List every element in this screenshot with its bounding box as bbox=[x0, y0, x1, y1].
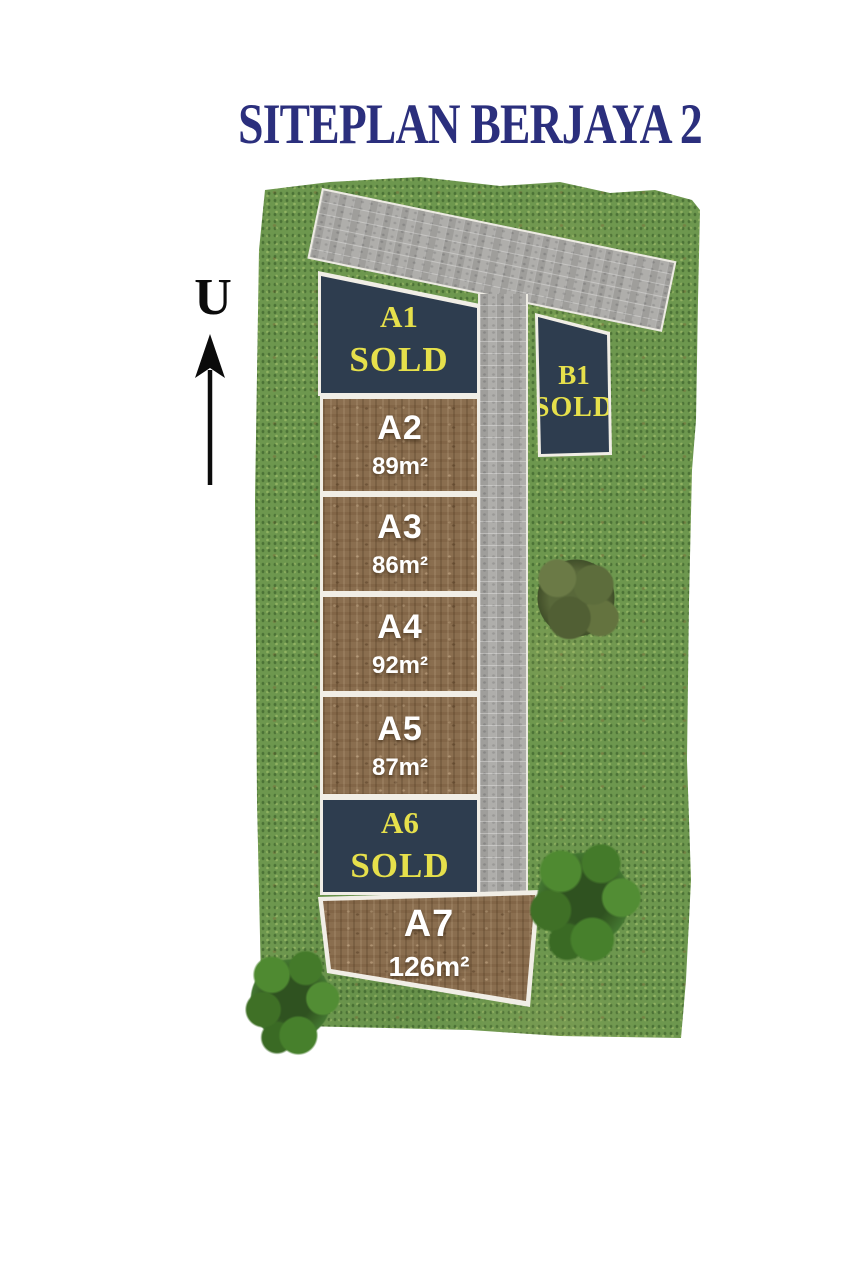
plot-a3: A3 86m² bbox=[320, 494, 480, 594]
plot-id: A2 bbox=[377, 411, 422, 445]
plot-a7: A7 126m² bbox=[314, 886, 544, 1012]
plot-a5: A5 87m² bbox=[320, 694, 480, 797]
plot-area: 87m² bbox=[372, 756, 428, 780]
north-indicator: U bbox=[183, 272, 243, 492]
plot-area: 126m² bbox=[389, 953, 470, 981]
plot-b1: B1 SOLD bbox=[533, 311, 615, 461]
plot-a6: A6 SOLD bbox=[320, 797, 480, 895]
plot-id: A6 bbox=[381, 807, 419, 840]
plot-area: 92m² bbox=[372, 654, 428, 678]
plot-id: A1 bbox=[380, 301, 418, 334]
tree-icon bbox=[523, 841, 649, 967]
plot-area: 86m² bbox=[372, 554, 428, 578]
plot-id: A4 bbox=[377, 610, 422, 644]
north-arrow-icon bbox=[183, 332, 243, 492]
plot-id: A7 bbox=[404, 905, 455, 943]
plot-id: A5 bbox=[377, 712, 422, 746]
siteplan-canvas: SITEPLAN BERJAYA 2 U A1 SOLD A2 89m² A3 … bbox=[0, 0, 866, 1280]
plot-a4: A4 92m² bbox=[320, 594, 480, 694]
plot-status: SOLD bbox=[534, 393, 614, 422]
plot-a1: A1 SOLD bbox=[318, 268, 480, 396]
page-title: SITEPLAN BERJAYA 2 bbox=[238, 92, 702, 157]
plot-id: B1 bbox=[558, 361, 590, 389]
north-label: U bbox=[183, 272, 243, 324]
bush-icon bbox=[521, 543, 631, 653]
plot-area: 89m² bbox=[372, 455, 428, 479]
plot-id: A3 bbox=[377, 510, 422, 544]
plot-status: SOLD bbox=[349, 342, 448, 379]
plot-status: SOLD bbox=[350, 848, 449, 885]
plot-a2: A2 89m² bbox=[320, 396, 480, 494]
tree-icon bbox=[240, 948, 346, 1060]
